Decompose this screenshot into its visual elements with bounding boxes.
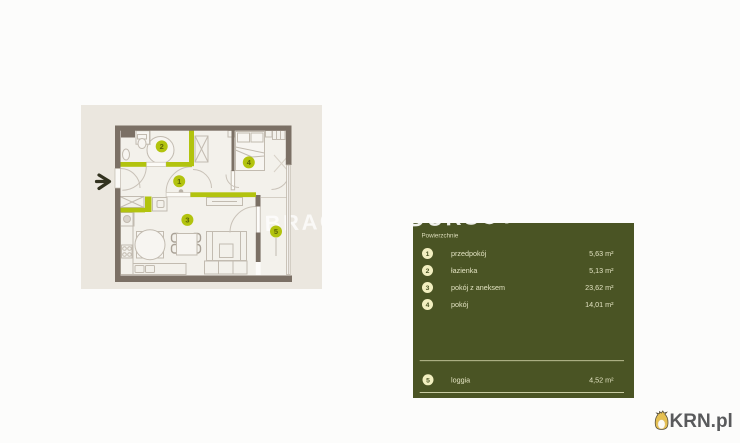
- svg-text:3: 3: [185, 216, 189, 225]
- svg-text:3: 3: [426, 285, 430, 292]
- svg-text:5,63 m²: 5,63 m²: [589, 249, 614, 258]
- svg-text:loggia: loggia: [451, 375, 470, 384]
- svg-text:2: 2: [160, 142, 164, 151]
- svg-text:pokój: pokój: [451, 300, 469, 309]
- svg-text:4,52 m²: 4,52 m²: [589, 375, 614, 384]
- svg-text:4: 4: [426, 302, 430, 309]
- svg-text:1: 1: [426, 251, 430, 258]
- svg-text:14,01 m²: 14,01 m²: [585, 300, 614, 309]
- svg-text:pokój z aneksem: pokój z aneksem: [451, 283, 505, 292]
- svg-text:Powierzchnie: Powierzchnie: [422, 233, 459, 240]
- svg-text:5,13 m²: 5,13 m²: [589, 266, 614, 275]
- svg-text:łazienka: łazienka: [451, 266, 477, 275]
- svg-text:KRN.pl: KRN.pl: [670, 411, 733, 432]
- svg-text:przedpokój: przedpokój: [451, 249, 487, 258]
- svg-text:5: 5: [426, 377, 430, 384]
- svg-text:5: 5: [274, 227, 278, 236]
- svg-text:1: 1: [177, 177, 181, 186]
- svg-text:2: 2: [426, 268, 430, 275]
- svg-text:23,62 m²: 23,62 m²: [585, 283, 614, 292]
